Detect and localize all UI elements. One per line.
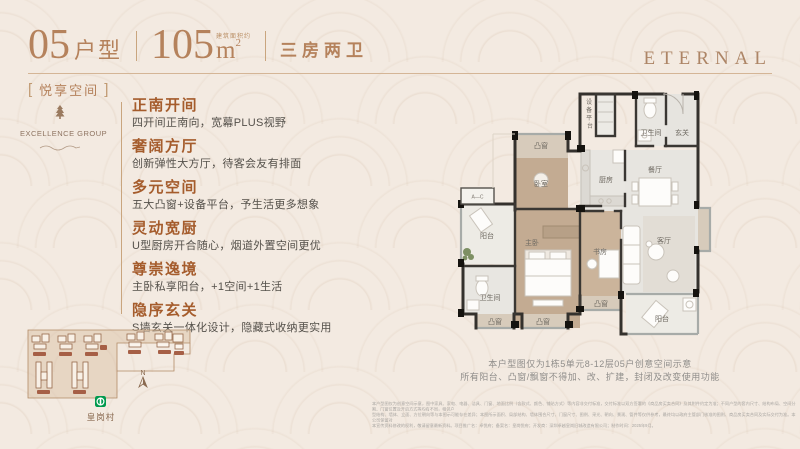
metro-station-label: 皇岗村 xyxy=(87,412,116,422)
bath2-label: 卫生间 xyxy=(480,293,501,302)
bath1-label: 卫生间 xyxy=(641,128,662,137)
unit-number: 05 xyxy=(28,28,70,64)
bedroom2-label: 卧室 xyxy=(534,179,548,188)
feature-item: 尊崇逸境 主卧私享阳台，+1空间+1生活 xyxy=(132,261,382,294)
bracket-open: [ xyxy=(28,81,34,98)
study-label: 书房 xyxy=(593,247,607,256)
layout-label: 三房两卫 xyxy=(280,42,368,59)
feature-desc: 创新弹性大方厅，待客会友有排面 xyxy=(132,158,382,171)
floor-plan: A—C 凸窗 卧室 阳台 卫生间 主卧 凸窗 凸窗 书房 凸窗 客厅 餐厅 厨房… xyxy=(443,88,723,355)
features-divider-line xyxy=(121,102,122,314)
foyer-label: 玄关 xyxy=(675,128,689,137)
feature-title: 灵动宽厨 xyxy=(132,220,382,237)
dining-table xyxy=(639,178,671,206)
metro-station-icon xyxy=(95,396,106,407)
dimension-line xyxy=(493,134,515,188)
bay-window-label: 凸窗 xyxy=(594,299,608,308)
feature-title: 奢阔方厅 xyxy=(132,138,382,155)
washer xyxy=(683,298,696,311)
disclaimer-line2: 型结构、墙体、立面、方位朝向等与本图示可能存在差异；本图所示面积、局部结构、墙体… xyxy=(372,412,796,423)
toilet xyxy=(476,280,488,296)
toilet xyxy=(644,102,656,118)
unit-suffix: 户型 xyxy=(74,40,122,62)
section-tag: [ 悦享空间 ] xyxy=(28,80,110,99)
area-unit: 建筑面积约 m 2 xyxy=(216,34,251,63)
bay-window-label: 凸窗 xyxy=(488,317,502,326)
feature-item: 奢阔方厅 创新弹性大方厅，待客会友有排面 xyxy=(132,138,382,171)
feature-title: 正南开间 xyxy=(132,97,382,114)
kitchen-label: 厨房 xyxy=(599,175,613,184)
armchair xyxy=(667,270,679,282)
brand-script-decoration xyxy=(38,143,82,151)
svg-text:A—C: A—C xyxy=(472,195,484,201)
feature-list: 正南开间 四开间正南向，宽幕PLUS视野 奢阔方厅 创新弹性大方厅，待客会友有排… xyxy=(132,97,382,343)
feature-desc: U型厨房开合随心，烟道外置空间更优 xyxy=(132,240,382,253)
feature-item: 正南开间 四开间正南向，宽幕PLUS视野 xyxy=(132,97,382,130)
equipment-platform-label: 设 备 平 台 xyxy=(586,98,594,130)
feature-title: 隐序玄关 xyxy=(132,302,382,319)
developer-brand-name: EXCELLENCE GROUP xyxy=(20,129,100,138)
chair xyxy=(587,259,597,269)
feature-title: 多元空间 xyxy=(132,179,382,196)
fridge xyxy=(613,150,625,163)
ac-platform: A—C xyxy=(461,188,494,204)
living-label: 客厅 xyxy=(657,236,671,245)
feature-title: 尊崇逸境 xyxy=(132,261,382,278)
header-divider xyxy=(136,31,137,61)
north-arrow-icon: N xyxy=(139,370,147,387)
feature-item: 多元空间 五大凸窗+设备平台，予生活更多想象 xyxy=(132,179,382,212)
section-tag-label: 悦享空间 xyxy=(39,80,99,99)
counter xyxy=(581,150,590,206)
eternal-logo: ETERNAL xyxy=(643,48,772,70)
balcony-right-label: 阳台 xyxy=(655,314,669,323)
sofa xyxy=(623,226,640,284)
tree-icon xyxy=(52,104,68,120)
bay-window-label: 凸窗 xyxy=(534,141,548,150)
bay-window-label: 凸窗 xyxy=(536,317,550,326)
disclaimer-line3: 本宣传资料修改的权利，敬请留意最新资料。项目推广名：卓悦府；备案名：皇岗悦府；开… xyxy=(372,423,796,429)
header: 05 户型 105 建筑面积约 m 2 三房两卫 xyxy=(28,28,368,64)
area-value: 105 xyxy=(151,28,214,64)
master-label: 主卧 xyxy=(525,238,539,247)
balcony-left-label: 阳台 xyxy=(480,231,494,240)
dining-label: 餐厅 xyxy=(648,165,662,174)
plan-caption-line2: 所有阳台、凸窗/飘窗不得加、改、扩建，封闭及改变使用功能 xyxy=(428,371,752,384)
wardrobe xyxy=(543,226,580,238)
header-divider xyxy=(265,31,266,61)
site-map: N 皇岗村 xyxy=(12,324,217,439)
feature-desc: 四开间正南向，宽幕PLUS视野 xyxy=(132,117,382,130)
bench xyxy=(533,300,563,306)
feature-desc: 五大凸窗+设备平台，予生活更多想象 xyxy=(132,199,382,212)
plan-caption: 本户型图仅为1栋5单元8-12层05户创意空间示意 所有阳台、凸窗/飘窗不得加、… xyxy=(428,358,752,384)
vanity xyxy=(467,300,479,310)
feature-item: 灵动宽厨 U型厨房开合随心，烟道外置空间更优 xyxy=(132,220,382,253)
plan-caption-line1: 本户型图仅为1栋5单元8-12层05户创意空间示意 xyxy=(428,358,752,371)
bracket-close: ] xyxy=(104,81,110,98)
disclaimer-line1: 本户型图仅为创意空间示意，图中家具、家电、电器、洁具、门窗、地面比例（含款式、颜… xyxy=(372,401,796,412)
developer-brand: EXCELLENCE GROUP xyxy=(20,104,100,156)
feature-desc: 主卧私享阳台，+1空间+1生活 xyxy=(132,281,382,294)
header-rule xyxy=(28,73,772,74)
brochure-page: 05 户型 105 建筑面积约 m 2 三房两卫 ETERNAL [ 悦享空间 … xyxy=(0,0,800,449)
legal-disclaimer: 本户型图仅为创意空间示意，图中家具、家电、电器、洁具、门窗、地面比例（含款式、颜… xyxy=(372,401,796,445)
